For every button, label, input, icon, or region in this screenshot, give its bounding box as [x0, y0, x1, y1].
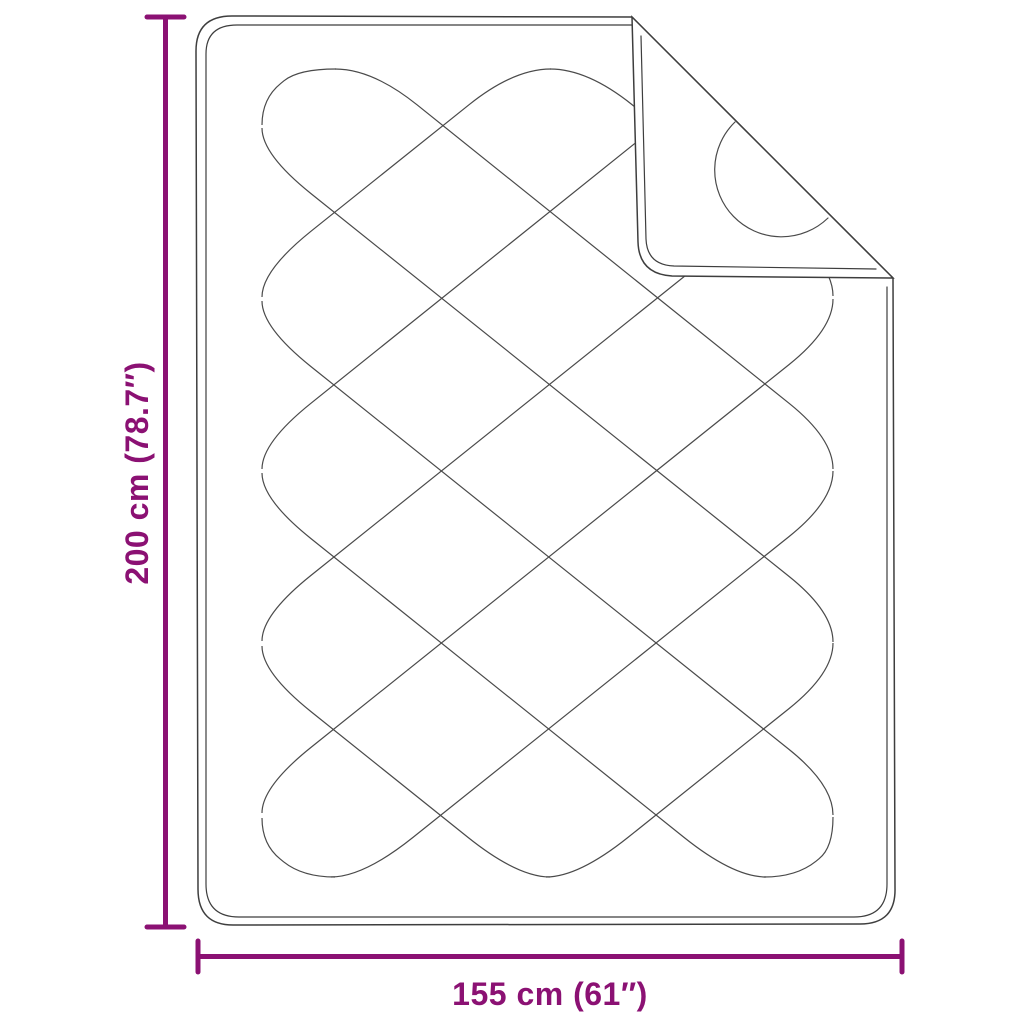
folded-corner-flap	[632, 17, 893, 278]
height-dimension-label: 200 cm (78.7″)	[119, 361, 155, 584]
blanket-outline	[196, 16, 895, 925]
quilt-stitch-line	[331, 471, 833, 877]
quilt-stitch-line	[764, 817, 833, 877]
blanket-inner-seam	[206, 25, 887, 917]
quilt-stitch-line	[262, 69, 551, 297]
width-dimension	[198, 941, 902, 972]
quilt-stitch-line	[262, 818, 335, 877]
product-dimension-diagram: 200 cm (78.7″) 155 cm (61″)	[0, 0, 1024, 1024]
flap-shape	[632, 17, 893, 278]
quilt-stitch-line	[262, 69, 336, 125]
width-dimension-label: 155 cm (61″)	[452, 976, 648, 1012]
quilt-stitch-line	[262, 473, 766, 877]
blanket-diagram-canvas: 200 cm (78.7″) 155 cm (61″)	[0, 0, 1024, 1024]
blanket-outline-group	[196, 16, 895, 925]
